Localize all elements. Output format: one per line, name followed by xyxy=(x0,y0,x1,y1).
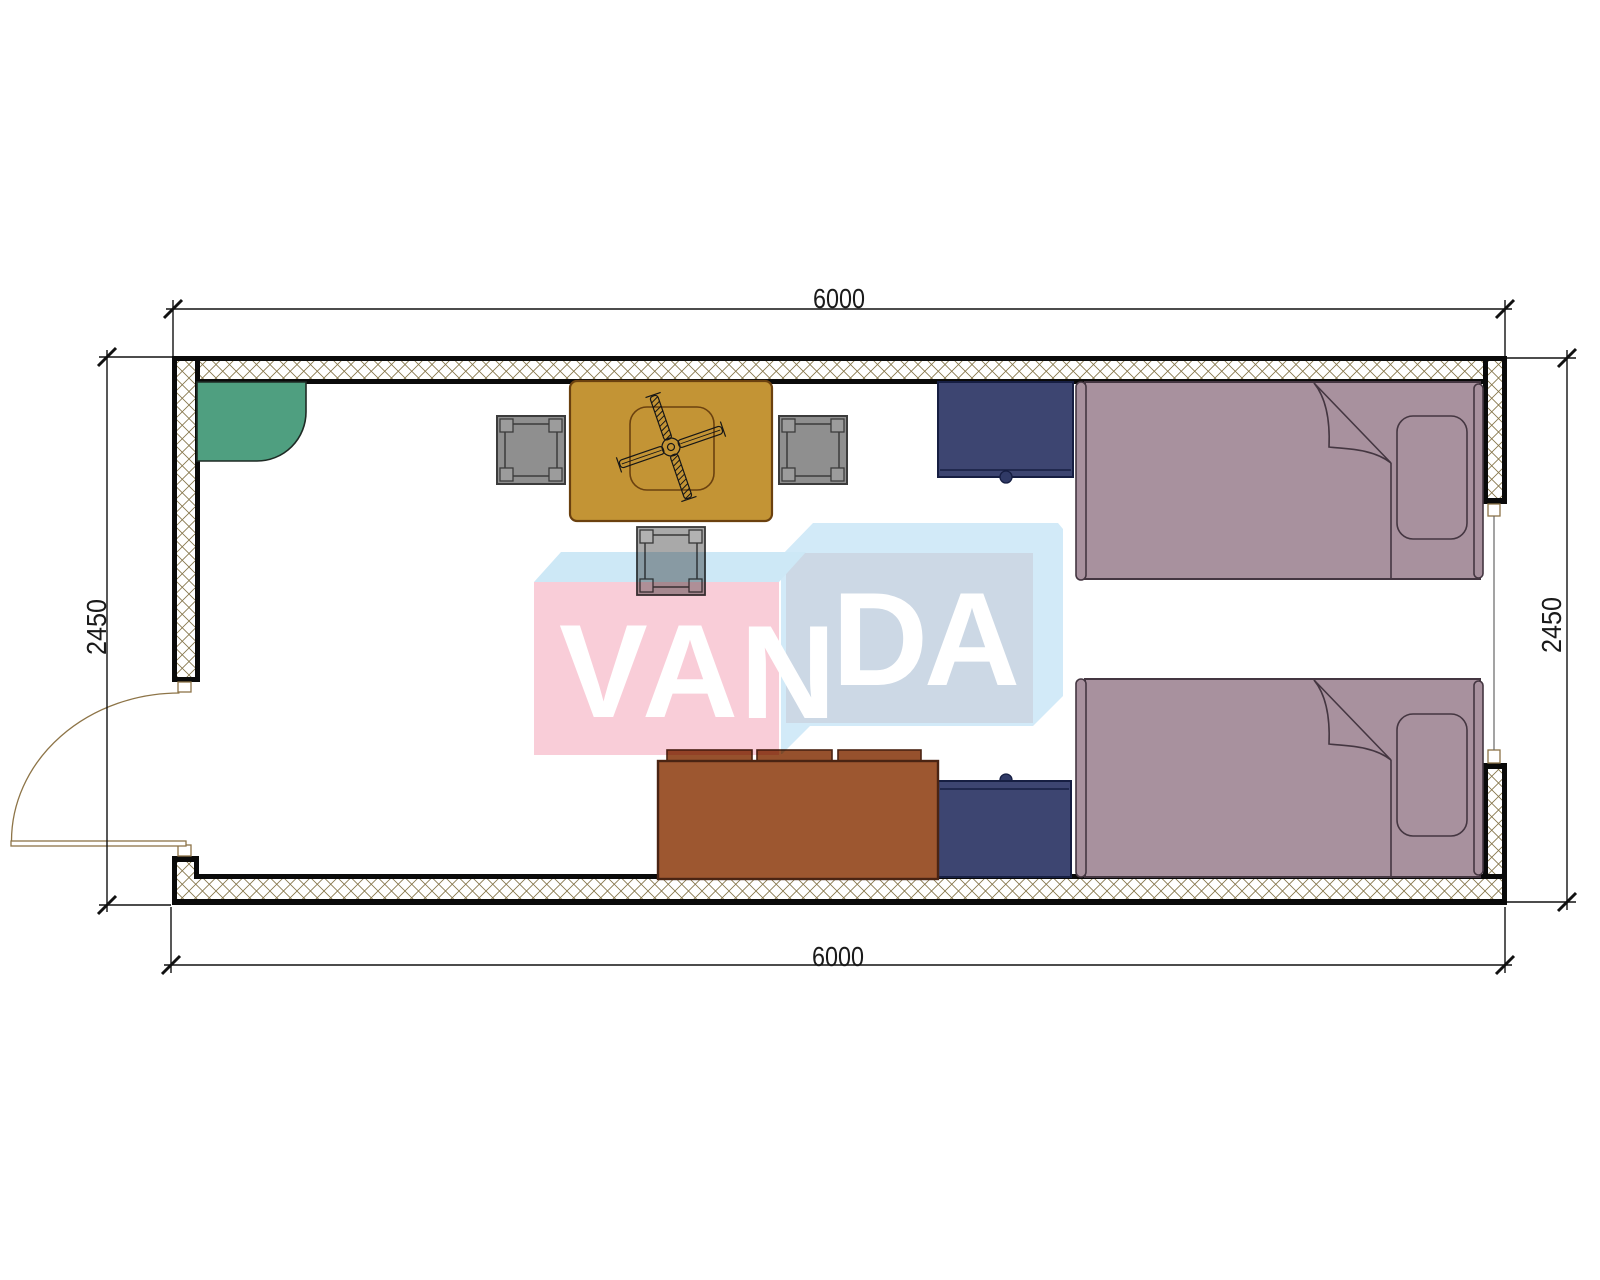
svg-text:A: A xyxy=(924,566,1020,714)
svg-text:6000: 6000 xyxy=(812,941,864,972)
svg-text:2450: 2450 xyxy=(1536,597,1567,653)
svg-text:6000: 6000 xyxy=(813,283,865,314)
svg-text:V: V xyxy=(559,598,648,746)
svg-text:D: D xyxy=(832,566,928,714)
svg-text:A: A xyxy=(642,598,738,746)
svg-text:N: N xyxy=(740,599,836,747)
svg-text:2450: 2450 xyxy=(81,599,112,655)
